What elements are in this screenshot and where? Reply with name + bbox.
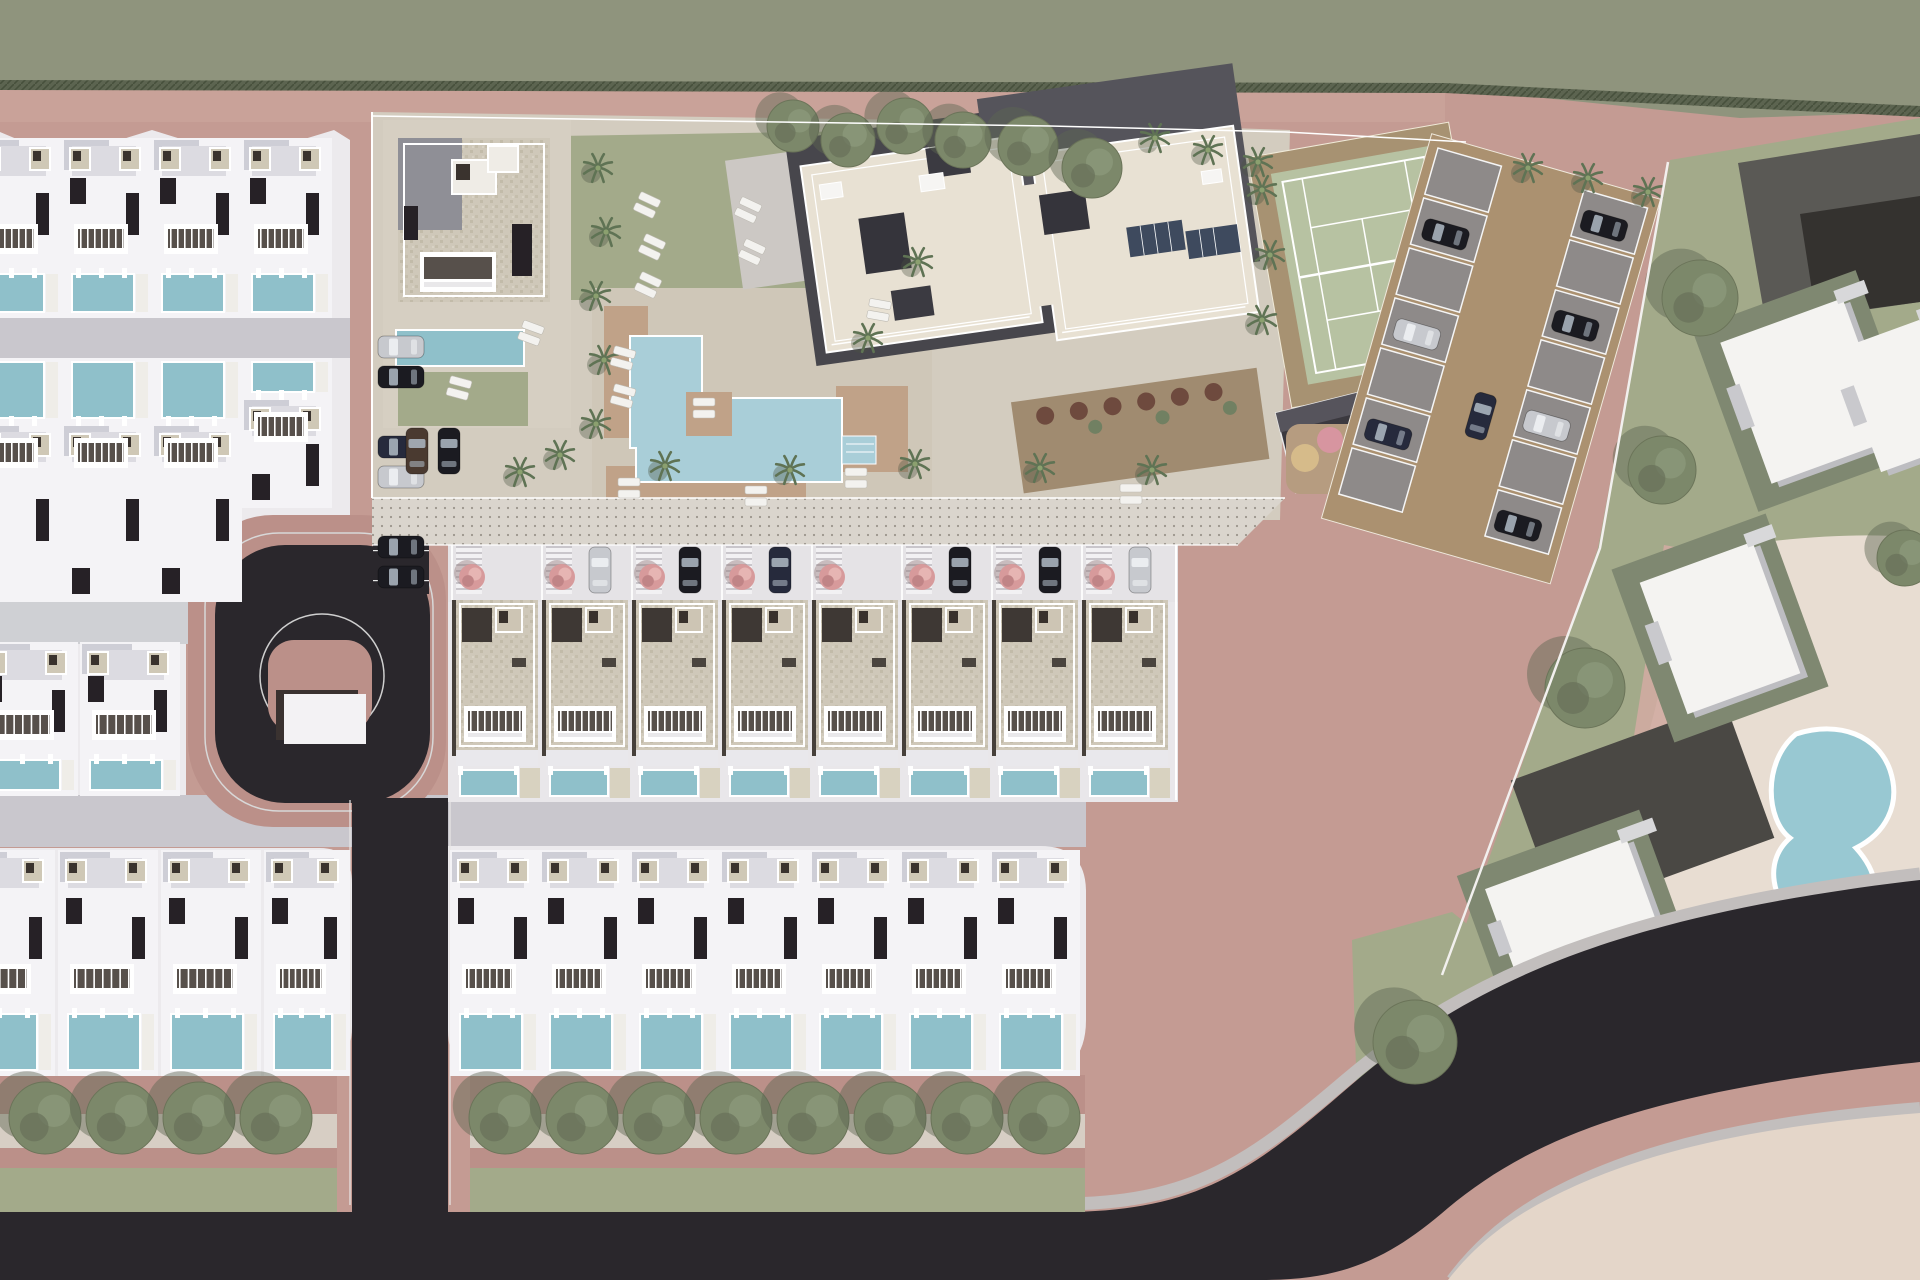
car [589, 547, 611, 593]
villa [242, 138, 332, 318]
villa-pool [90, 760, 162, 790]
car [769, 547, 791, 593]
villa-pool [162, 274, 224, 312]
villa-pool [730, 1014, 792, 1070]
villa [152, 358, 242, 602]
villa [630, 850, 720, 1076]
bottom-villa-row [450, 850, 1080, 1076]
villa [152, 138, 242, 318]
villa [161, 850, 261, 1076]
villa [900, 850, 990, 1076]
car [438, 428, 460, 474]
villa-pool [274, 1014, 332, 1070]
villa [242, 358, 332, 508]
villa [62, 138, 152, 318]
villa [720, 850, 810, 1076]
villa [990, 850, 1080, 1076]
townhouse-pool [550, 770, 608, 796]
villa [0, 642, 78, 796]
villa [540, 850, 630, 1076]
villa-pool [0, 274, 44, 312]
villa-pool [910, 1014, 972, 1070]
villa-pool [640, 1014, 702, 1070]
townhouse-pool [460, 770, 518, 796]
villa-pool [72, 274, 134, 312]
townhouse-pool [1000, 770, 1058, 796]
site-plan-rendering [0, 0, 1920, 1280]
townhouse-pool [640, 770, 698, 796]
car [378, 566, 424, 588]
villa [0, 138, 62, 318]
villa [62, 358, 152, 602]
villa [0, 358, 62, 602]
car [679, 547, 701, 593]
villa [264, 850, 350, 1076]
car [378, 536, 424, 558]
car [1129, 547, 1151, 593]
access-road [0, 318, 350, 358]
car [378, 366, 424, 388]
villa-pool [162, 362, 224, 418]
access-road [0, 795, 1086, 847]
villa-pool [820, 1014, 882, 1070]
side-road-vertical [352, 798, 448, 1218]
villa [810, 850, 900, 1076]
townhouse-pool [910, 770, 968, 796]
playground-circle [1317, 427, 1343, 453]
townhouse-pool [820, 770, 878, 796]
villa-pool [68, 1014, 140, 1070]
villa [0, 850, 55, 1076]
villa-pool [171, 1014, 243, 1070]
villa-pool [0, 362, 44, 418]
villa-pool [252, 274, 314, 312]
villa-pool [550, 1014, 612, 1070]
villa-pool [1000, 1014, 1062, 1070]
car [949, 547, 971, 593]
car [378, 336, 424, 358]
playground-circle [1291, 444, 1319, 472]
villa [80, 642, 180, 796]
villa [450, 850, 540, 1076]
villa-pool [460, 1014, 522, 1070]
townhouse-pool [1090, 770, 1148, 796]
villa-pool [0, 1014, 37, 1070]
page-root [0, 0, 1920, 1280]
villa-pool [252, 362, 314, 392]
townhouse-pool [730, 770, 788, 796]
villa-pool [0, 760, 60, 790]
car [406, 428, 428, 474]
villa [58, 850, 158, 1076]
villa-pool [72, 362, 134, 418]
car [1039, 547, 1061, 593]
island-building [284, 694, 366, 744]
promenade [372, 498, 1285, 545]
